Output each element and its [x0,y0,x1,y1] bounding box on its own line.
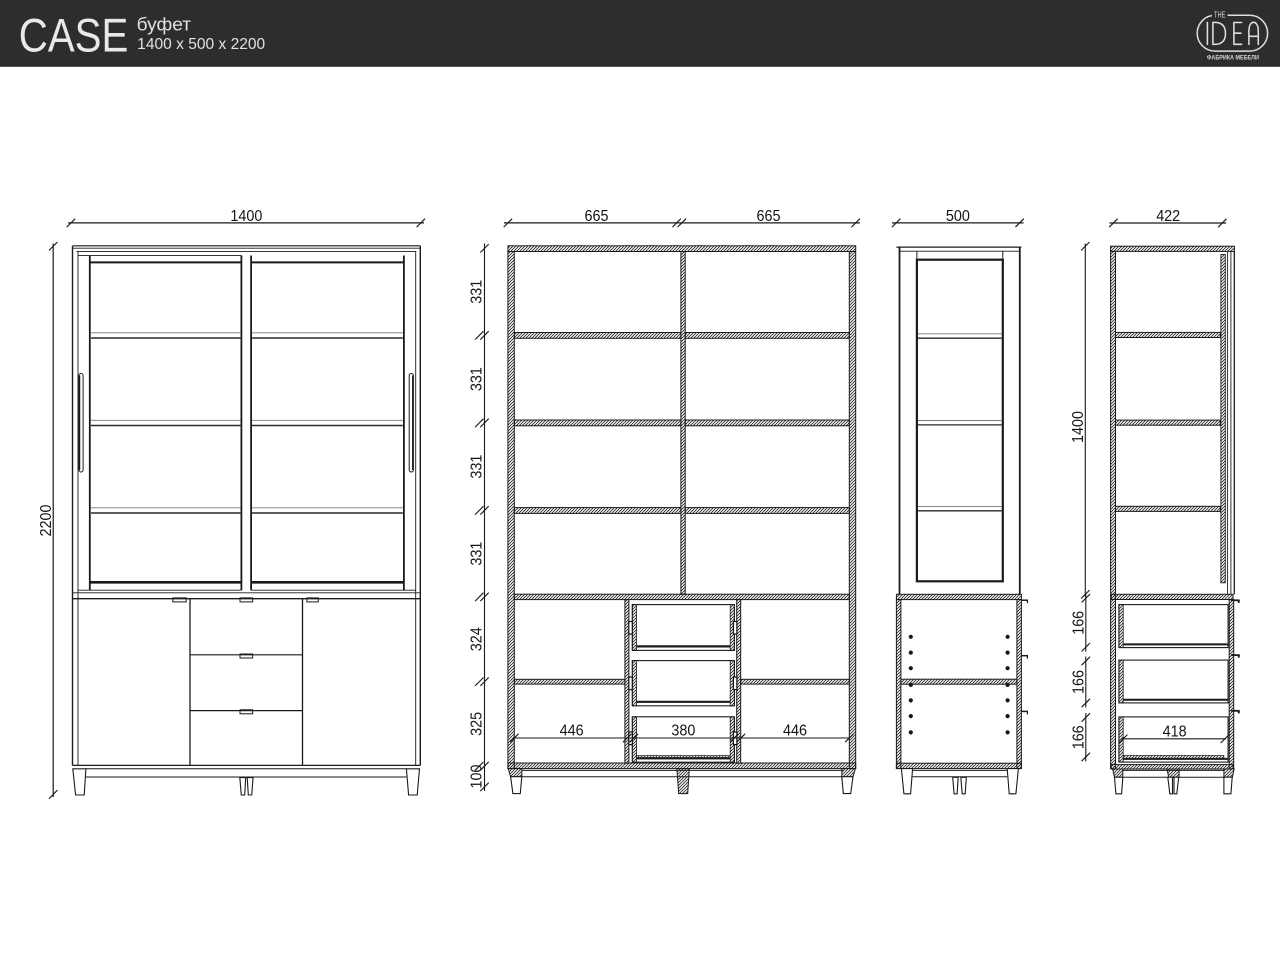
svg-text:THE: THE [1214,11,1225,20]
svg-text:166: 166 [1070,725,1087,749]
svg-text:446: 446 [783,723,807,740]
svg-text:324: 324 [469,627,486,651]
svg-text:1400 x 500 x 2200: 1400 x 500 x 2200 [137,36,265,53]
svg-text:380: 380 [671,723,695,740]
svg-text:1400: 1400 [1070,411,1087,443]
svg-text:418: 418 [1163,724,1187,741]
svg-text:500: 500 [946,208,970,225]
svg-text:665: 665 [757,208,781,225]
svg-text:ФАБРИКА МЕБЕЛИ: ФАБРИКА МЕБЕЛИ [1207,54,1259,61]
svg-text:100: 100 [469,764,486,788]
svg-text:422: 422 [1156,208,1180,225]
svg-text:буфет: буфет [137,14,192,35]
svg-text:331: 331 [469,280,486,304]
svg-text:665: 665 [585,208,609,225]
svg-text:331: 331 [469,455,486,479]
svg-text:1400: 1400 [230,208,262,225]
svg-text:166: 166 [1070,670,1087,694]
svg-text:325: 325 [469,712,486,736]
svg-text:446: 446 [560,723,584,740]
svg-text:CASE: CASE [19,10,129,63]
svg-text:331: 331 [469,367,486,391]
svg-text:2200: 2200 [38,504,55,536]
svg-text:166: 166 [1070,611,1087,635]
svg-text:331: 331 [469,542,486,566]
